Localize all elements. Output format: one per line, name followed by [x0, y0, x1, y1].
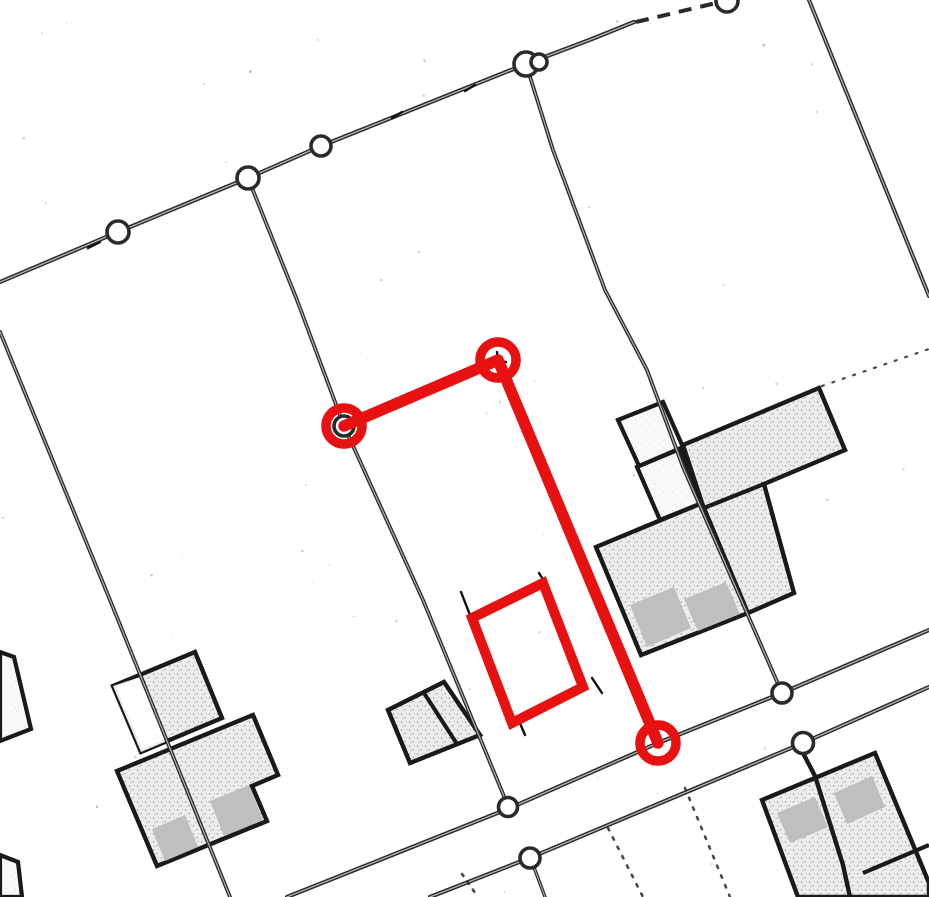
- speckle-dot: [96, 806, 99, 809]
- speckle-dot: [423, 59, 426, 62]
- speckle-dot: [714, 234, 715, 235]
- speckle-dot: [418, 251, 421, 254]
- speckle-dot: [45, 202, 47, 204]
- dotted-below-road-1: [608, 828, 643, 897]
- speckle-dot: [616, 20, 618, 22]
- junction-circle: [772, 683, 792, 703]
- speckle-dot: [225, 161, 227, 163]
- left-edge-building-top: [0, 652, 31, 741]
- road-top-dashed-gap: [636, 3, 716, 22]
- speckle-dot: [811, 63, 813, 65]
- junction-circle: [793, 733, 814, 754]
- speckle-dot: [181, 557, 182, 558]
- speckle-dot: [849, 351, 850, 352]
- speckle-dot: [499, 401, 502, 404]
- corner-tick: [592, 678, 602, 693]
- speckle-dot: [366, 358, 367, 359]
- speckle-dot: [380, 279, 382, 281]
- speckle-dot: [134, 756, 136, 758]
- speckle-dot: [203, 83, 205, 85]
- buildings-layer: [0, 388, 929, 897]
- speckle-dot: [702, 386, 705, 389]
- speckle-dot: [317, 39, 319, 41]
- speckle-dot: [486, 412, 488, 414]
- junction-circle: [311, 136, 331, 156]
- building-small-two-cell: [388, 682, 480, 763]
- speckle-dot: [506, 687, 508, 689]
- junction-circle: [107, 221, 129, 243]
- speckle-dot: [66, 23, 67, 24]
- speckle-dot: [786, 259, 787, 260]
- speckle-dot: [301, 550, 303, 552]
- corner-tick: [461, 592, 470, 615]
- speckle-dot: [543, 533, 544, 534]
- speckle-dot: [775, 382, 778, 385]
- dotted-below-road-2: [685, 788, 730, 897]
- speckle-dot: [709, 842, 710, 843]
- speckle-dot: [633, 474, 635, 476]
- speckle-dot: [150, 574, 153, 577]
- speckle-dot: [313, 582, 314, 583]
- cadastral-map-view: [0, 0, 929, 897]
- speckle-dot: [423, 95, 425, 97]
- speckle-dot: [2, 517, 4, 519]
- speckle-dot: [764, 747, 767, 750]
- junction-circle-small: [531, 54, 547, 70]
- speckle-dot: [656, 793, 657, 794]
- map-svg: [0, 0, 929, 897]
- junction-circle: [520, 848, 540, 868]
- speckle-dot: [710, 863, 712, 865]
- red-planned-building-rect: [472, 583, 583, 723]
- speckle-dot: [22, 137, 25, 140]
- line-top-right-core: [809, 0, 929, 296]
- speckle-dot: [826, 499, 828, 501]
- speckle-dot: [329, 564, 331, 566]
- speckle-dot: [353, 615, 355, 617]
- speckle-dot: [305, 484, 307, 486]
- junction-circle: [499, 798, 518, 817]
- speckle-dot: [588, 206, 590, 208]
- speckle-dot: [762, 44, 765, 47]
- speckle-dot: [533, 380, 534, 381]
- speckle-dot: [285, 145, 286, 146]
- speckle-dot: [816, 111, 818, 113]
- speckle-dot: [597, 777, 599, 779]
- speckle-dot: [503, 891, 505, 893]
- speckle-dot: [723, 285, 725, 287]
- speckle-dot: [538, 631, 541, 634]
- speckle-dot: [468, 688, 469, 689]
- speckle-dot: [172, 632, 173, 633]
- speckle-dot: [249, 70, 252, 73]
- dotted-ext-building-corner: [822, 349, 929, 386]
- speckle-dot: [41, 32, 43, 34]
- speckle-dot: [637, 116, 638, 117]
- junction-circle: [237, 167, 259, 189]
- speckle-dot: [902, 468, 904, 470]
- left-edge-building-bottom: [0, 855, 22, 897]
- speckle-dot: [395, 620, 397, 622]
- junction-circle-clipped: [716, 0, 738, 12]
